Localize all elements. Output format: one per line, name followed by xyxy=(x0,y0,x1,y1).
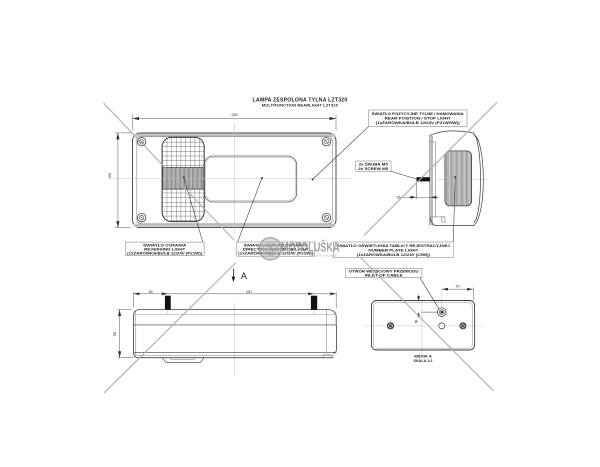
svg-text:15: 15 xyxy=(396,195,400,199)
svg-text:INLET OF CABLE: INLET OF CABLE xyxy=(365,274,404,278)
svg-text:36: 36 xyxy=(148,290,152,294)
svg-text:(1xŻARÓWKA/BULB 12/24V (P21W)): (1xŻARÓWKA/BULB 12/24V (P21W)) xyxy=(127,250,202,255)
svg-text:NUMBER PLATE LIGHT: NUMBER PLATE LIGHT xyxy=(368,249,419,253)
svg-text:WIDOK A: WIDOK A xyxy=(414,354,432,359)
svg-text:SKALA 1:2: SKALA 1:2 xyxy=(414,359,433,363)
svg-text:AKCESORIA SAMOCHODOWE: AKCESORIA SAMOCHODOWE xyxy=(312,253,336,257)
svg-text:ŚWIATŁO OŚWIETLENIA TABLICY RE: ŚWIATŁO OŚWIETLENIA TABLICY REJESTRACYJN… xyxy=(337,243,450,248)
svg-text:MOTOLUŠKA: MOTOLUŠKA xyxy=(281,240,340,255)
svg-text:A: A xyxy=(241,271,247,281)
svg-text:(1xŻARÓWKA/BULB 12/24V (C5W)): (1xŻARÓWKA/BULB 12/24V (C5W)) xyxy=(357,252,430,257)
svg-text:103: 103 xyxy=(108,173,112,179)
svg-text:157: 157 xyxy=(246,290,252,294)
svg-text:2x SCREW M5: 2x SCREW M5 xyxy=(358,167,388,171)
svg-text:230: 230 xyxy=(231,113,237,117)
svg-text:70: 70 xyxy=(455,285,459,289)
svg-text:(1xŻARÓWKA/BULB 12/24V (P21W/5: (1xŻARÓWKA/BULB 12/24V (P21W/5W)) xyxy=(376,120,460,125)
svg-text:2x ŚRUBA M5: 2x ŚRUBA M5 xyxy=(359,162,388,167)
svg-text:ŚWIATŁO POZYCYJNE TYLNE / HAMO: ŚWIATŁO POZYCYJNE TYLNE / HAMOWANIA xyxy=(372,111,465,116)
svg-text:55: 55 xyxy=(113,332,117,336)
svg-text:MULTIFUNCTION REARLIGHT LZT320: MULTIFUNCTION REARLIGHT LZT320 xyxy=(262,102,338,107)
svg-text:REAR POSITION / STOP LIGHT: REAR POSITION / STOP LIGHT xyxy=(385,117,452,121)
